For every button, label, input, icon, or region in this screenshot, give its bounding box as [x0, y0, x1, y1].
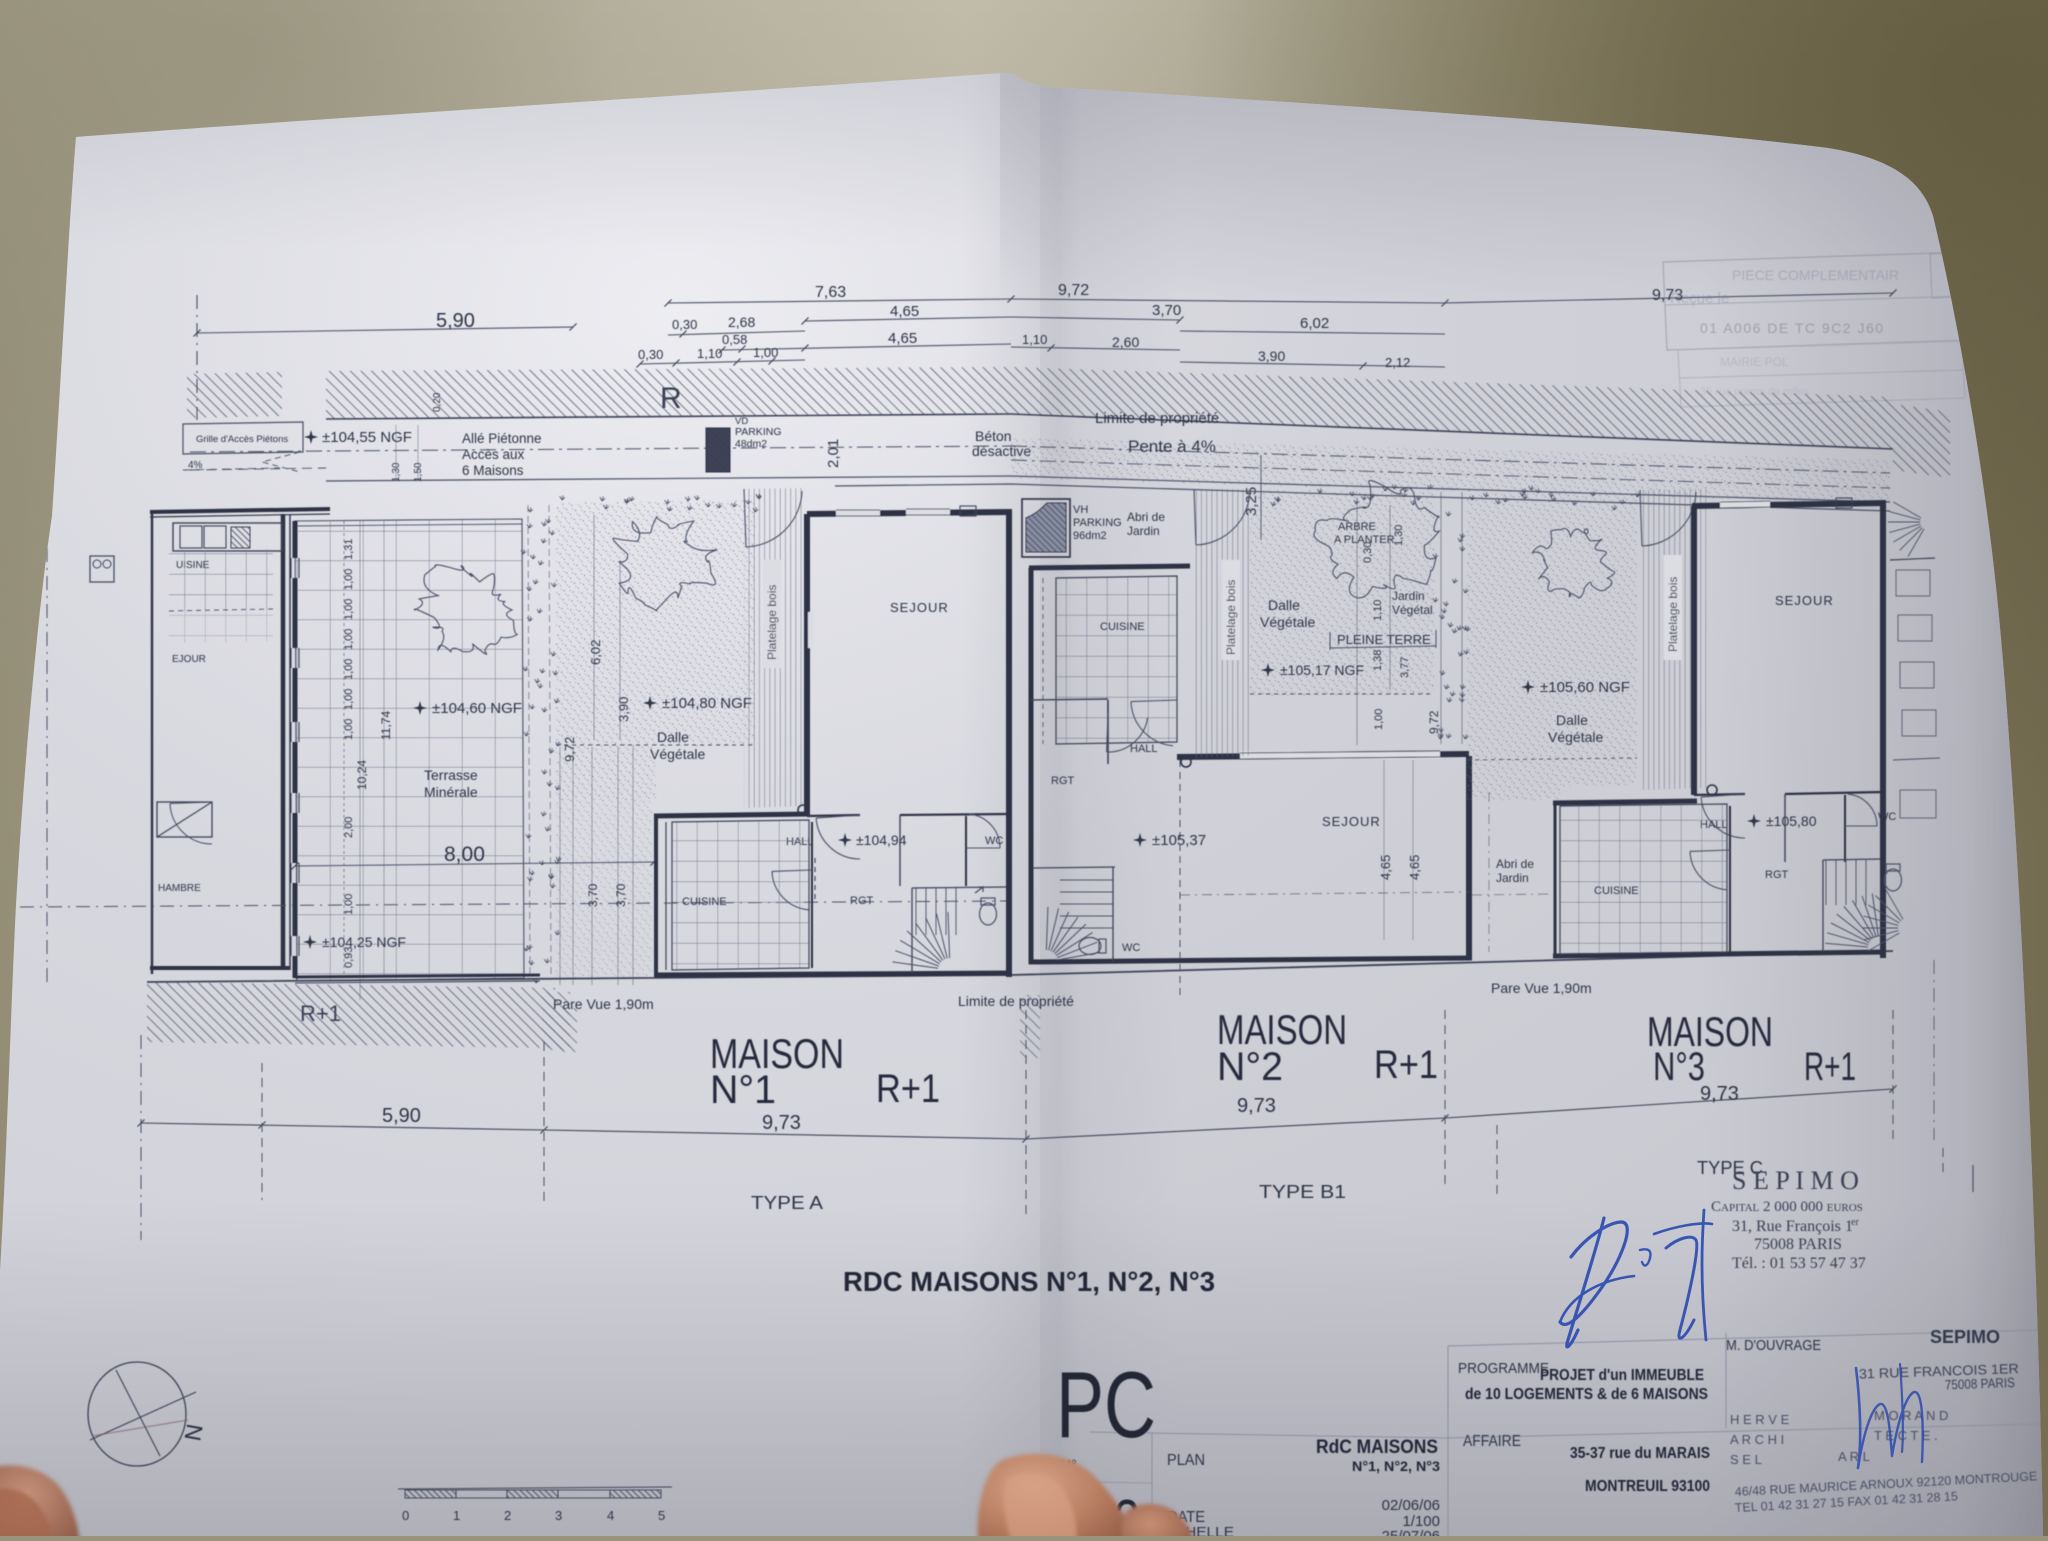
svg-text:EJOUR: EJOUR — [172, 654, 206, 665]
svg-text:MAIRIE POL: MAIRIE POL — [1720, 355, 1789, 369]
svg-text:1,10: 1,10 — [1372, 600, 1384, 621]
svg-text:TYPE B1: TYPE B1 — [1259, 1182, 1346, 1202]
svg-text:Terrasse: Terrasse — [424, 767, 478, 783]
svg-text:35-37 rue du MARAIS: 35-37 rue du MARAIS — [1570, 1445, 1710, 1462]
svg-text:Minérale: Minérale — [424, 784, 478, 800]
svg-text:1,50: 1,50 — [413, 462, 424, 482]
svg-text:6,02: 6,02 — [1300, 315, 1329, 332]
svg-text:R: R — [660, 382, 682, 415]
svg-text:1,00: 1,00 — [1373, 709, 1385, 730]
svg-text:4,65: 4,65 — [888, 330, 917, 347]
svg-text:±104,55 NGF: ±104,55 NGF — [322, 429, 412, 446]
svg-text:R+1: R+1 — [1804, 1045, 1856, 1089]
svg-text:Dalle: Dalle — [657, 729, 689, 745]
svg-text:±105,37: ±105,37 — [1152, 832, 1206, 849]
svg-text:RGT: RGT — [1051, 775, 1075, 787]
svg-text:VH: VH — [1073, 504, 1088, 516]
svg-text:3,70: 3,70 — [586, 883, 600, 907]
svg-text:1,30: 1,30 — [391, 462, 402, 482]
svg-text:2,01: 2,01 — [825, 439, 842, 468]
svg-text:R+1: R+1 — [876, 1067, 940, 1111]
svg-text:Limite de propriété: Limite de propriété — [958, 993, 1074, 1009]
svg-text:0,30: 0,30 — [672, 317, 697, 332]
svg-text:MONTREUIL 93100: MONTREUIL 93100 — [1585, 1478, 1710, 1495]
svg-text:1,10: 1,10 — [697, 346, 722, 361]
svg-text:2,68: 2,68 — [728, 314, 755, 330]
svg-text:CUISINE: CUISINE — [682, 896, 727, 908]
svg-text:5,90: 5,90 — [436, 310, 475, 332]
svg-text:6 Maisons: 6 Maisons — [462, 463, 524, 478]
svg-text:3,70: 3,70 — [1152, 302, 1181, 319]
svg-text:11,74: 11,74 — [379, 711, 393, 740]
svg-text:Platelage bois: Platelage bois — [1224, 580, 1238, 655]
svg-text:±104,25 NGF: ±104,25 NGF — [322, 934, 406, 950]
svg-text:±104,60 NGF: ±104,60 NGF — [432, 700, 522, 717]
svg-text:Dalle: Dalle — [1268, 597, 1300, 613]
svg-text:2: 2 — [504, 1508, 511, 1523]
svg-text:3,77: 3,77 — [1399, 657, 1411, 678]
svg-text:Abri de: Abri de — [1127, 510, 1165, 524]
svg-text:75008 PARIS: 75008 PARIS — [1754, 1236, 1842, 1253]
svg-text:1,00: 1,00 — [343, 629, 355, 650]
svg-text:±104,94: ±104,94 — [856, 832, 907, 848]
svg-text:9,73: 9,73 — [762, 1112, 801, 1134]
svg-text:1,00: 1,00 — [753, 345, 778, 360]
svg-text:4%: 4% — [188, 460, 203, 471]
svg-text:Pare Vue 1,90m: Pare Vue 1,90m — [1491, 980, 1592, 996]
svg-text:Allé Piétonne: Allé Piétonne — [462, 431, 542, 446]
svg-text:M. D'OUVRAGE: M. D'OUVRAGE — [1726, 1337, 1821, 1354]
svg-text:02/06/06: 02/06/06 — [1382, 1497, 1440, 1514]
svg-text:1,00: 1,00 — [343, 659, 355, 680]
svg-text:Végétal: Végétal — [1392, 603, 1433, 617]
svg-text:01 A006 DE TC 9C2 J60: 01 A006 DE TC 9C2 J60 — [1700, 320, 1885, 336]
svg-text:10,24: 10,24 — [355, 760, 369, 790]
svg-text:±104,80 NGF: ±104,80 NGF — [662, 695, 752, 712]
svg-text:Dalle: Dalle — [1556, 712, 1588, 728]
svg-text:T E C T E .: T E C T E . — [1874, 1428, 1938, 1443]
svg-text:S E P I M O: S E P I M O — [1732, 1166, 1859, 1195]
svg-text:N°1, N°2, N°3: N°1, N°2, N°3 — [1352, 1458, 1440, 1474]
svg-text:4,65: 4,65 — [890, 303, 919, 320]
svg-text:PIECE COMPLEMENTAIR: PIECE COMPLEMENTAIR — [1732, 267, 1899, 283]
svg-text:HAMBRE: HAMBRE — [158, 883, 201, 894]
svg-text:WC: WC — [1878, 811, 1896, 823]
svg-text:R+1: R+1 — [300, 1001, 341, 1026]
svg-text:0,20: 0,20 — [432, 392, 443, 412]
svg-text:0: 0 — [402, 1508, 409, 1523]
svg-text:Jardin: Jardin — [1127, 524, 1160, 538]
svg-text:PROGRAMME: PROGRAMME — [1458, 1360, 1549, 1377]
svg-text:HALL: HALL — [1130, 743, 1158, 755]
svg-text:48dm2: 48dm2 — [735, 438, 767, 450]
svg-text:8,00: 8,00 — [444, 843, 485, 866]
svg-text:A R C H I: A R C H I — [1730, 1432, 1784, 1447]
svg-text:1,38: 1,38 — [1372, 650, 1384, 671]
svg-text:R+1: R+1 — [1374, 1043, 1438, 1087]
svg-text:±105,60 NGF: ±105,60 NGF — [1540, 679, 1630, 696]
svg-text:6,02: 6,02 — [588, 640, 603, 665]
svg-text:N°2: N°2 — [1217, 1045, 1283, 1089]
svg-text:Capital 2 000 000 euros: Capital 2 000 000 euros — [1711, 1199, 1863, 1215]
svg-text:1,00: 1,00 — [343, 689, 355, 710]
svg-text:1,00: 1,00 — [343, 599, 355, 620]
svg-text:1,00: 1,00 — [343, 719, 355, 740]
svg-text:PROJET d'un IMMEUBLE: PROJET d'un IMMEUBLE — [1540, 1367, 1704, 1384]
svg-text:CUISINE: CUISINE — [1594, 885, 1639, 897]
svg-text:PC: PC — [1056, 1352, 1156, 1457]
svg-text:31, Rue François 1: 31, Rue François 1 — [1732, 1218, 1853, 1235]
svg-text:Accès aux: Accès aux — [462, 447, 525, 462]
svg-text:Végétale: Végétale — [650, 746, 705, 762]
svg-text:PARKING: PARKING — [1073, 517, 1122, 529]
svg-text:er: er — [1851, 1217, 1859, 1228]
svg-text:±105,80: ±105,80 — [1766, 813, 1817, 829]
svg-text:Béton: Béton — [975, 428, 1012, 444]
svg-text:N°3: N°3 — [1653, 1045, 1705, 1089]
svg-text:9,73: 9,73 — [1700, 1083, 1739, 1105]
svg-text:3,90: 3,90 — [1258, 348, 1285, 364]
svg-text:RGT: RGT — [850, 895, 874, 907]
svg-text:WC: WC — [1122, 942, 1140, 954]
svg-text:0,58: 0,58 — [722, 332, 747, 347]
svg-text:SEJOUR: SEJOUR — [890, 600, 949, 615]
svg-text:±105,17 NGF: ±105,17 NGF — [1280, 662, 1364, 678]
svg-text:Jardin: Jardin — [1496, 871, 1529, 885]
svg-text:9,72: 9,72 — [1427, 710, 1441, 734]
svg-text:1,30: 1,30 — [1393, 525, 1405, 546]
svg-text:H E R V E: H E R V E — [1730, 1412, 1790, 1427]
svg-text:SEJOUR: SEJOUR — [1322, 814, 1381, 829]
svg-text:4,65: 4,65 — [1378, 855, 1393, 880]
svg-text:de 10 LOGEMENTS & de 6 MAISONS: de 10 LOGEMENTS & de 6 MAISONS — [1465, 1386, 1708, 1403]
svg-text:Platelage bois: Platelage bois — [1666, 577, 1680, 652]
svg-text:A R L: A R L — [1838, 1449, 1870, 1464]
svg-text:Grille d'Accès Piétons: Grille d'Accès Piétons — [196, 434, 288, 445]
svg-text:5: 5 — [658, 1508, 665, 1523]
svg-text:CUISINE: CUISINE — [1100, 621, 1145, 633]
svg-text:1,00: 1,00 — [343, 569, 355, 590]
svg-text:SEPIMO: SEPIMO — [1930, 1327, 2000, 1347]
svg-text:2,12: 2,12 — [1385, 355, 1410, 370]
svg-text:RGT: RGT — [1765, 869, 1789, 881]
svg-text:RdC MAISONS: RdC MAISONS — [1316, 1437, 1438, 1458]
svg-text:1,31: 1,31 — [343, 539, 355, 560]
svg-text:3: 3 — [555, 1508, 562, 1523]
svg-text:Végétale: Végétale — [1548, 729, 1603, 745]
svg-text:PLAN: PLAN — [1167, 1452, 1205, 1469]
svg-text:Abri de: Abri de — [1496, 857, 1534, 871]
svg-text:9,72: 9,72 — [562, 737, 577, 762]
svg-text:4: 4 — [607, 1508, 614, 1523]
svg-text:75008 PARIS: 75008 PARIS — [1945, 1375, 2015, 1392]
svg-text:TYPE A: TYPE A — [751, 1193, 823, 1213]
svg-text:9,73: 9,73 — [1237, 1095, 1276, 1117]
svg-text:Reçue le: Reçue le — [1670, 290, 1729, 307]
svg-text:N°1: N°1 — [710, 1068, 776, 1112]
svg-text:RDC MAISONS N°1, N°2, N°3: RDC MAISONS N°1, N°2, N°3 — [843, 1266, 1215, 1297]
svg-text:S E L: S E L — [1730, 1452, 1762, 1467]
svg-text:3,70: 3,70 — [614, 883, 628, 907]
svg-text:7,63: 7,63 — [815, 284, 846, 301]
svg-text:96dm2: 96dm2 — [1073, 530, 1107, 542]
svg-text:1: 1 — [453, 1508, 460, 1523]
svg-text:0,30: 0,30 — [1362, 542, 1374, 563]
svg-text:SEJOUR: SEJOUR — [1775, 593, 1834, 608]
svg-text:5,90: 5,90 — [382, 1105, 421, 1127]
svg-text:AFFAIRE: AFFAIRE — [1463, 1433, 1521, 1450]
svg-text:0,30: 0,30 — [638, 347, 663, 362]
svg-text:4,65: 4,65 — [1407, 855, 1422, 880]
svg-text:Tél. : 01 53 57 47 37: Tél. : 01 53 57 47 37 — [1732, 1255, 1866, 1272]
svg-text:9,72: 9,72 — [1058, 282, 1089, 299]
svg-text:PLEINE TERRE: PLEINE TERRE — [1337, 632, 1431, 647]
svg-text:Limite de propriété: Limite de propriété — [1095, 410, 1219, 427]
svg-text:Végétale: Végétale — [1260, 614, 1315, 630]
svg-text:Platelage bois: Platelage bois — [765, 585, 779, 660]
svg-text:Jardin: Jardin — [1392, 589, 1425, 603]
svg-text:3,90: 3,90 — [616, 697, 631, 722]
svg-text:2,60: 2,60 — [1112, 334, 1139, 350]
svg-text:2,00: 2,00 — [343, 817, 355, 838]
svg-text:1,00: 1,00 — [343, 894, 355, 915]
svg-text:WC: WC — [985, 835, 1003, 847]
svg-text:25/07/06: 25/07/06 — [1382, 1528, 1440, 1536]
svg-text:PARKING: PARKING — [735, 426, 781, 438]
svg-text:1,10: 1,10 — [1022, 332, 1047, 347]
